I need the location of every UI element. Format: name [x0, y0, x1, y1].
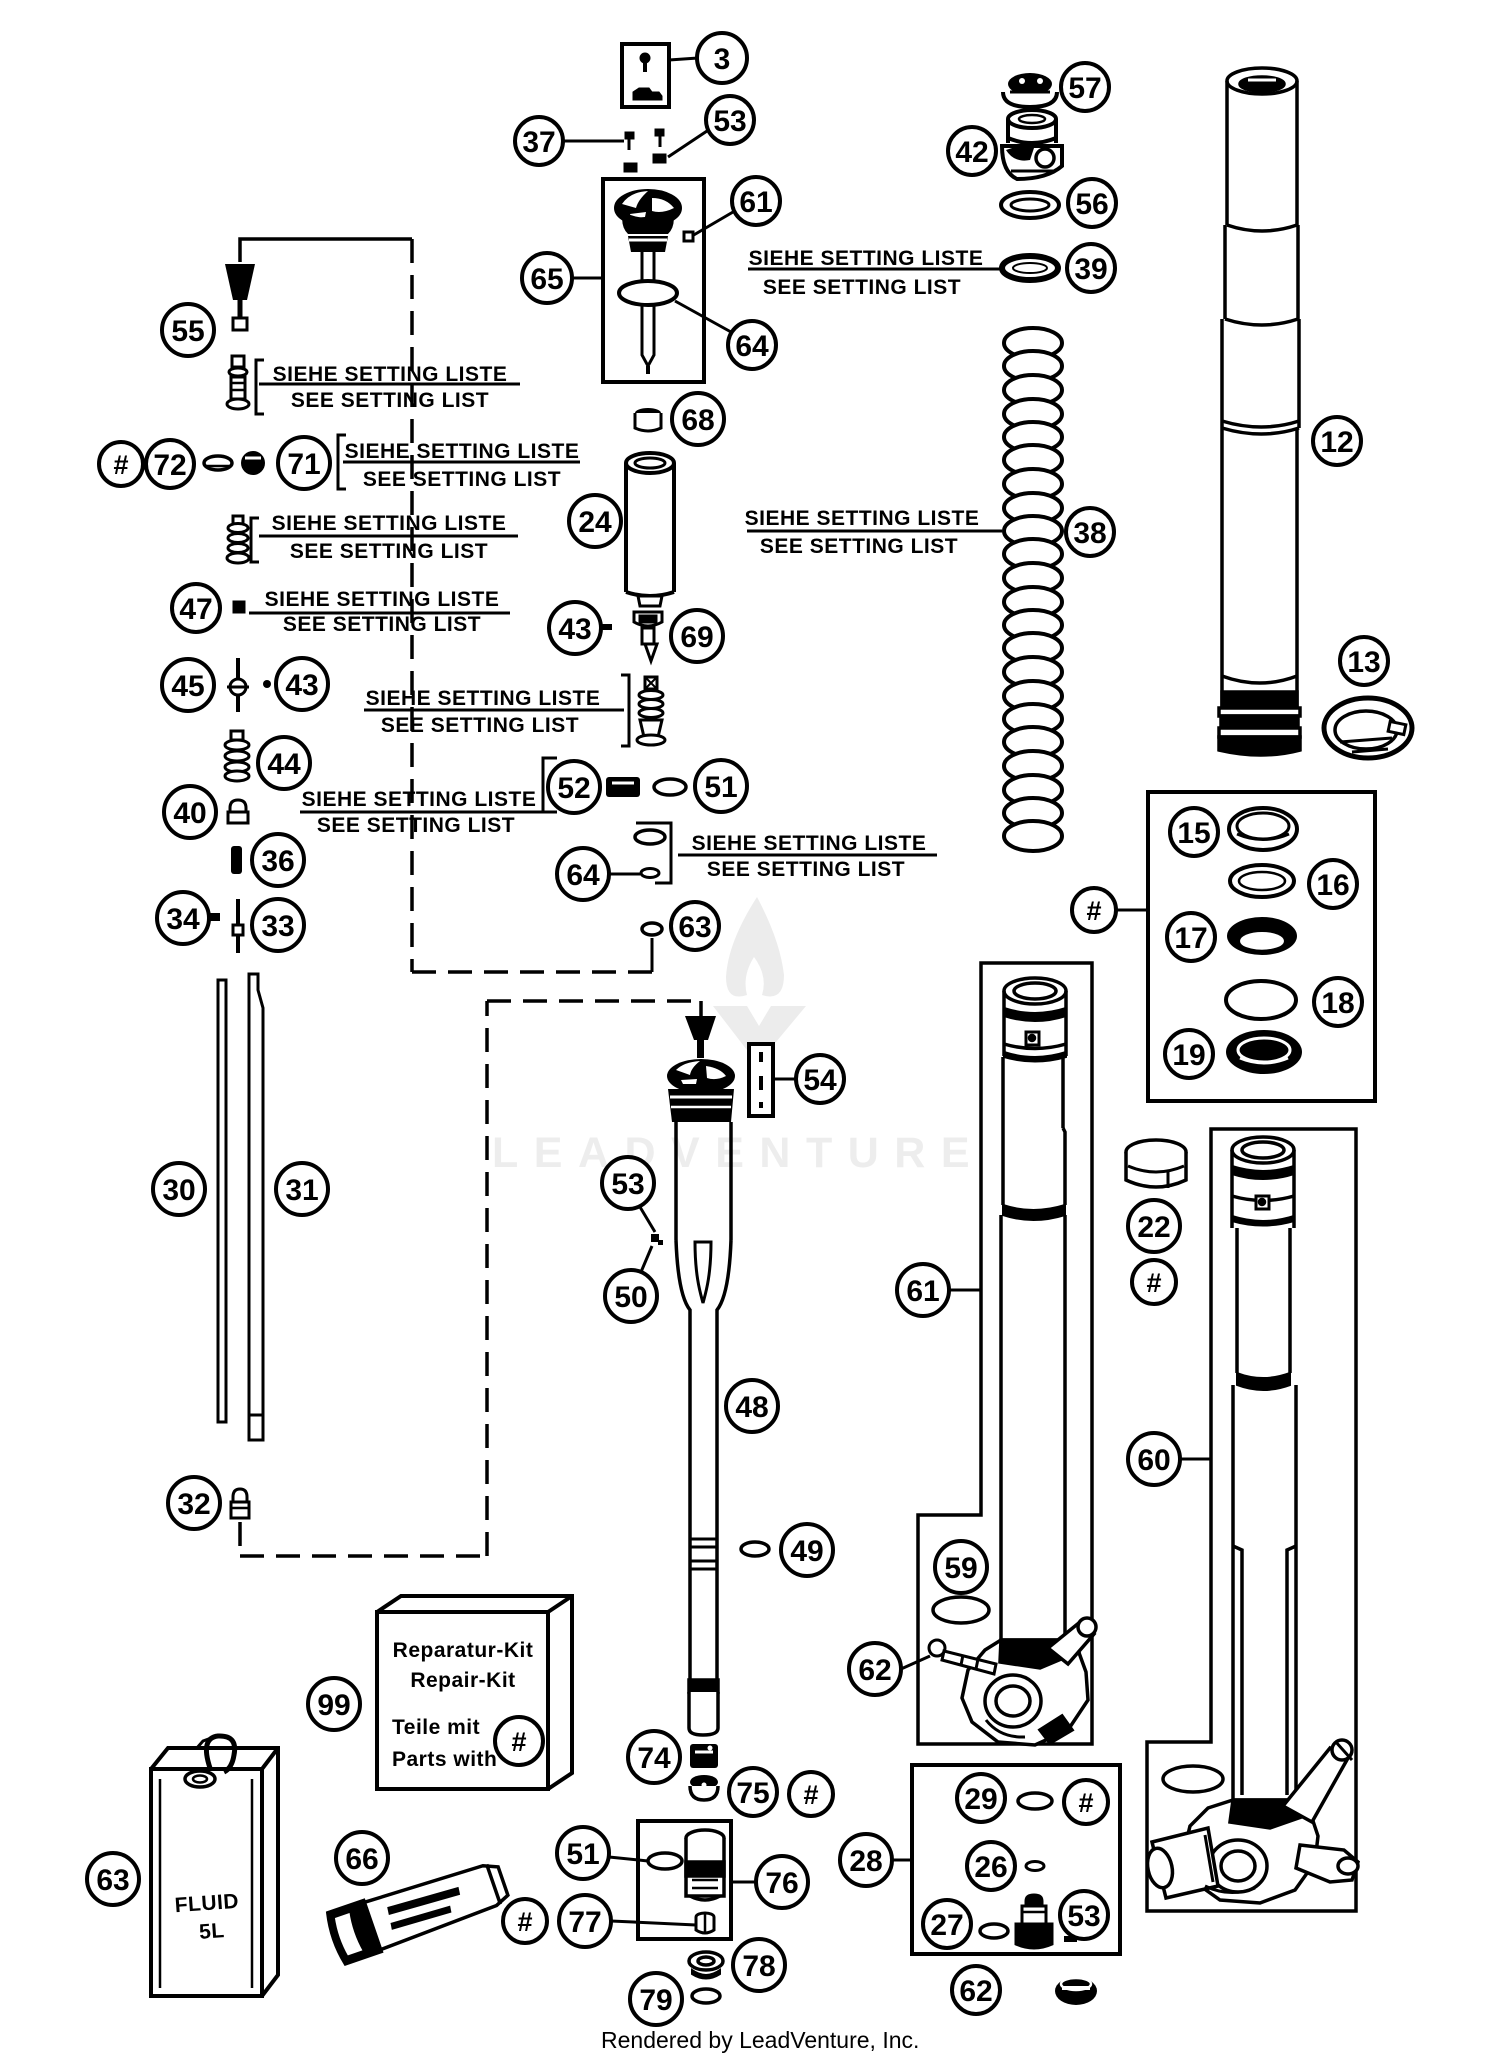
- svg-text:62: 62: [858, 1654, 891, 1687]
- svg-text:3: 3: [714, 43, 731, 76]
- svg-text:48: 48: [735, 1391, 768, 1424]
- svg-text:SEE SETTING LIST: SEE SETTING LIST: [317, 814, 515, 837]
- svg-text:65: 65: [530, 263, 563, 296]
- svg-text:69: 69: [680, 621, 713, 654]
- svg-text:#: #: [803, 1780, 818, 1810]
- svg-text:77: 77: [568, 1906, 601, 1939]
- svg-text:SIEHE SETTING LISTE: SIEHE SETTING LISTE: [345, 440, 580, 463]
- svg-text:FLUID: FLUID: [174, 1890, 240, 1917]
- svg-text:37: 37: [522, 126, 555, 159]
- svg-text:27: 27: [930, 1909, 963, 1942]
- svg-text:16: 16: [1316, 869, 1349, 902]
- svg-text:61: 61: [906, 1275, 939, 1308]
- svg-text:40: 40: [173, 797, 206, 830]
- svg-text:5L: 5L: [198, 1919, 225, 1944]
- svg-text:SIEHE SETTING LISTE: SIEHE SETTING LISTE: [272, 512, 507, 535]
- svg-text:SEE SETTING LIST: SEE SETTING LIST: [707, 858, 905, 881]
- svg-text:13: 13: [1347, 646, 1380, 679]
- svg-text:Rendered by LeadVenture, Inc.: Rendered by LeadVenture, Inc.: [601, 2027, 919, 2053]
- svg-text:SIEHE SETTING LISTE: SIEHE SETTING LISTE: [749, 247, 984, 270]
- svg-text:62: 62: [959, 1975, 992, 2008]
- svg-text:53: 53: [1067, 1900, 1100, 1933]
- svg-text:66: 66: [345, 1843, 378, 1876]
- svg-text:38: 38: [1073, 517, 1106, 550]
- svg-text:54: 54: [803, 1064, 837, 1097]
- svg-text:28: 28: [849, 1845, 882, 1878]
- svg-text:SIEHE SETTING LISTE: SIEHE SETTING LISTE: [302, 788, 537, 811]
- svg-text:51: 51: [704, 771, 737, 804]
- svg-text:74: 74: [637, 1742, 671, 1775]
- svg-text:79: 79: [639, 1984, 672, 2017]
- svg-text:64: 64: [735, 330, 769, 363]
- svg-text:#: #: [113, 450, 128, 480]
- svg-text:57: 57: [1068, 72, 1101, 105]
- svg-text:#: #: [1078, 1788, 1093, 1818]
- svg-text:#: #: [511, 1727, 526, 1757]
- svg-text:22: 22: [1137, 1211, 1170, 1244]
- svg-text:19: 19: [1172, 1039, 1205, 1072]
- svg-text:49: 49: [790, 1535, 823, 1568]
- svg-text:SIEHE SETTING LISTE: SIEHE SETTING LISTE: [366, 687, 601, 710]
- svg-text:56: 56: [1075, 188, 1108, 221]
- svg-text:Repair-Kit: Repair-Kit: [410, 1669, 515, 1692]
- svg-text:SEE SETTING LIST: SEE SETTING LIST: [763, 276, 961, 299]
- svg-text:63: 63: [96, 1864, 129, 1897]
- svg-text:LEADVENTURE: LEADVENTURE: [492, 1129, 985, 1177]
- svg-text:45: 45: [171, 670, 204, 703]
- svg-text:64: 64: [566, 859, 600, 892]
- svg-text:50: 50: [614, 1281, 647, 1314]
- svg-text:47: 47: [179, 593, 212, 626]
- svg-text:12: 12: [1320, 426, 1353, 459]
- svg-text:60: 60: [1137, 1444, 1170, 1477]
- svg-text:26: 26: [974, 1851, 1007, 1884]
- svg-text:SEE SETTING LIST: SEE SETTING LIST: [291, 389, 489, 412]
- svg-text:43: 43: [285, 669, 318, 702]
- svg-text:44: 44: [267, 748, 301, 781]
- svg-text:#: #: [1086, 896, 1101, 926]
- svg-text:24: 24: [578, 506, 612, 539]
- svg-text:55: 55: [171, 315, 204, 348]
- svg-text:78: 78: [742, 1950, 775, 1983]
- svg-text:99: 99: [317, 1689, 350, 1722]
- svg-text:31: 31: [285, 1174, 318, 1207]
- svg-text:Parts with: Parts with: [392, 1748, 497, 1771]
- svg-text:SIEHE SETTING LISTE: SIEHE SETTING LISTE: [692, 832, 927, 855]
- svg-text:SEE SETTING LIST: SEE SETTING LIST: [283, 613, 481, 636]
- svg-text:68: 68: [681, 404, 714, 437]
- svg-text:59: 59: [944, 1552, 977, 1585]
- svg-text:30: 30: [162, 1174, 195, 1207]
- svg-text:76: 76: [765, 1867, 798, 1900]
- svg-text:SEE SETTING LIST: SEE SETTING LIST: [363, 468, 561, 491]
- svg-text:51: 51: [566, 1838, 599, 1871]
- svg-text:36: 36: [261, 845, 294, 878]
- svg-text:75: 75: [736, 1777, 769, 1810]
- svg-text:52: 52: [557, 772, 590, 805]
- svg-text:63: 63: [678, 911, 711, 944]
- svg-text:53: 53: [713, 105, 746, 138]
- svg-text:#: #: [1146, 1268, 1161, 1298]
- svg-text:SEE SETTING LIST: SEE SETTING LIST: [381, 714, 579, 737]
- svg-text:42: 42: [955, 136, 988, 169]
- svg-text:Teile mit: Teile mit: [392, 1716, 480, 1739]
- svg-text:SIEHE SETTING LISTE: SIEHE SETTING LISTE: [745, 507, 980, 530]
- svg-text:29: 29: [964, 1783, 997, 1816]
- svg-text:Reparatur-Kit: Reparatur-Kit: [393, 1639, 534, 1662]
- svg-text:#: #: [517, 1907, 532, 1937]
- svg-text:34: 34: [166, 903, 200, 936]
- svg-text:39: 39: [1074, 253, 1107, 286]
- svg-text:71: 71: [287, 448, 320, 481]
- svg-text:SIEHE SETTING LISTE: SIEHE SETTING LISTE: [265, 588, 500, 611]
- svg-text:43: 43: [558, 613, 591, 646]
- svg-text:32: 32: [177, 1488, 210, 1521]
- svg-text:72: 72: [153, 449, 186, 482]
- svg-text:18: 18: [1321, 987, 1354, 1020]
- svg-text:53: 53: [611, 1168, 644, 1201]
- svg-text:61: 61: [739, 186, 772, 219]
- svg-text:SEE SETTING LIST: SEE SETTING LIST: [760, 535, 958, 558]
- svg-text:17: 17: [1174, 922, 1207, 955]
- svg-text:15: 15: [1177, 817, 1210, 850]
- svg-text:SEE SETTING LIST: SEE SETTING LIST: [290, 540, 488, 563]
- svg-text:33: 33: [261, 910, 294, 943]
